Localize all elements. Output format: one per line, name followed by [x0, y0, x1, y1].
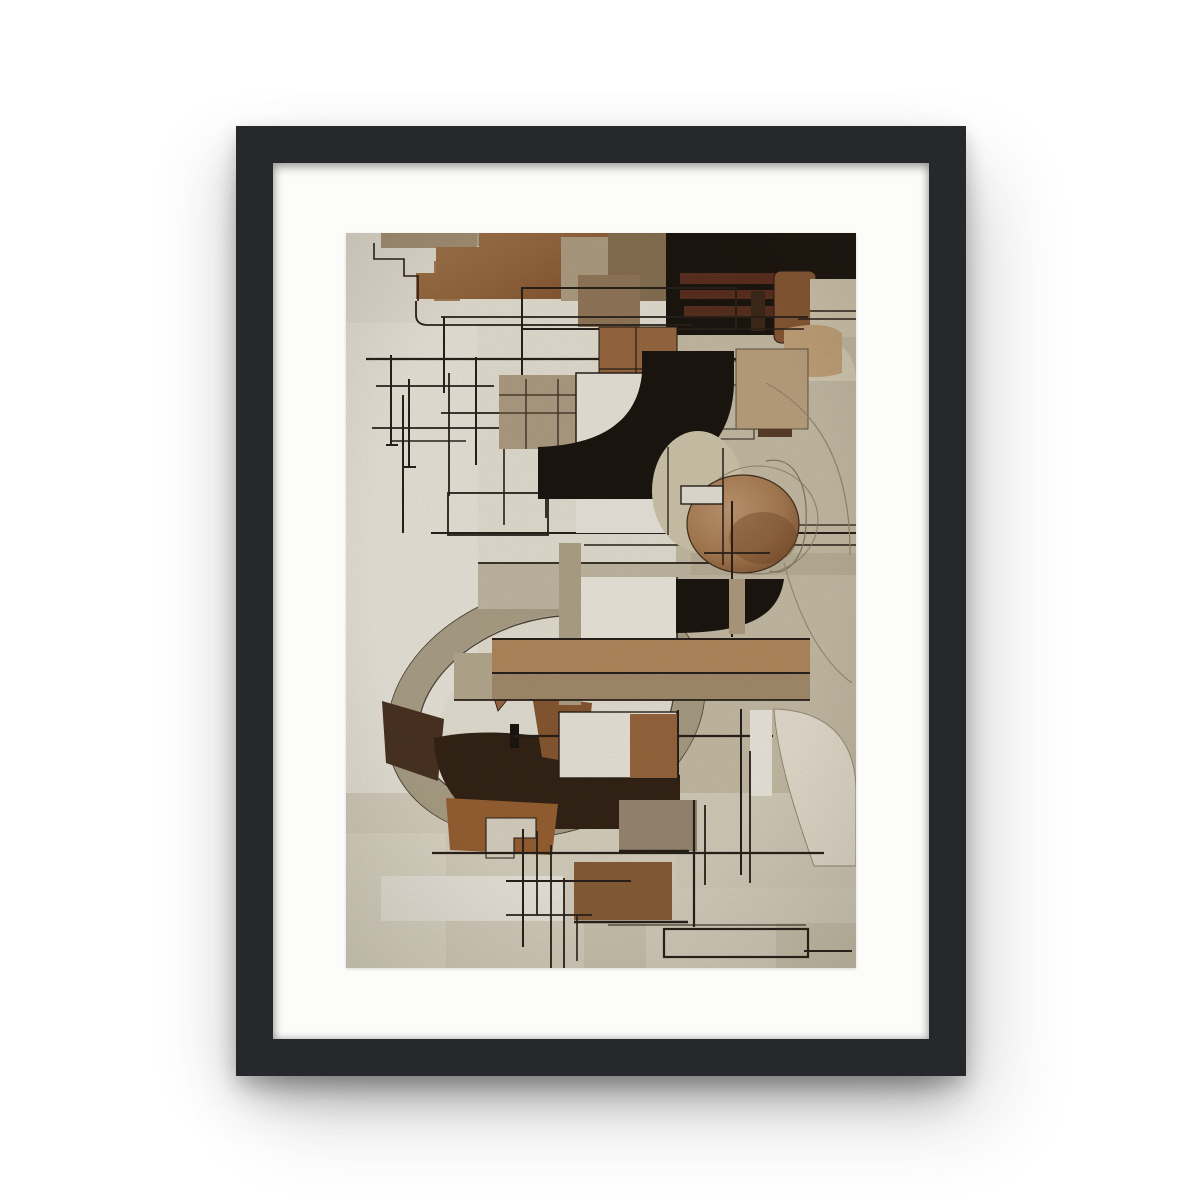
poster-frame [236, 126, 966, 1076]
product-photo [0, 0, 1200, 1200]
texture-overlay [346, 233, 856, 968]
frame-mat [273, 163, 929, 1039]
poster-artwork [346, 233, 856, 968]
